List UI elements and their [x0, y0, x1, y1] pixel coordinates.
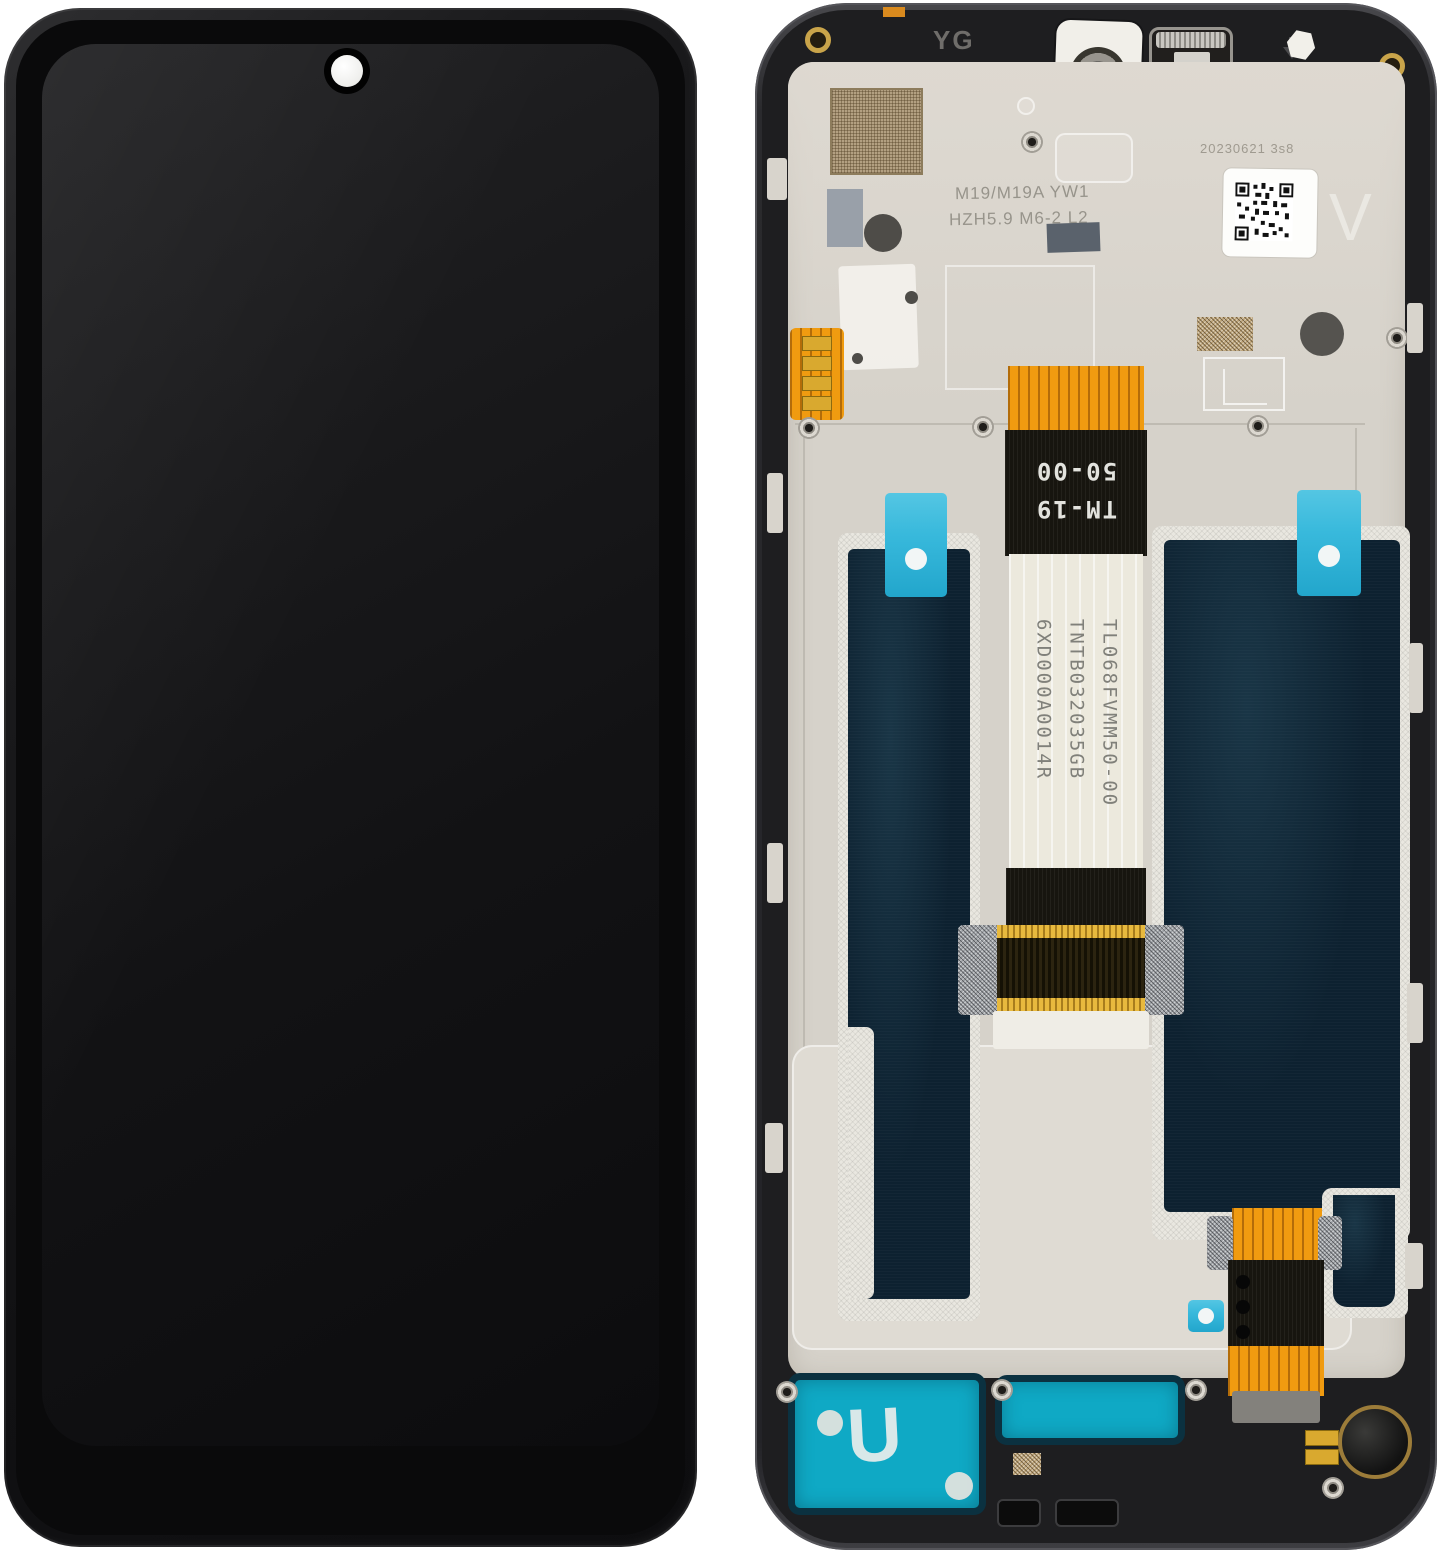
part-number-2: TNTB032035GB — [1060, 619, 1093, 807]
pull-tab-right — [1297, 490, 1361, 596]
connector-gold-bottom — [997, 998, 1145, 1011]
embossed-circle — [1017, 97, 1035, 115]
connector-pad-left — [958, 925, 1000, 1015]
speaker-adhesive-right — [995, 1375, 1185, 1445]
blue-gray-pad — [827, 189, 863, 247]
qr-code — [1235, 182, 1294, 241]
rail-tab — [1407, 303, 1423, 353]
yg-marking: YG — [933, 25, 975, 56]
flex-label-line-2: 50-00 — [1013, 452, 1139, 490]
br-flex-orange-bottom — [1228, 1346, 1324, 1396]
pull-tab-small — [1188, 1300, 1224, 1332]
graphite-arm — [1333, 1195, 1395, 1307]
punch-hole-camera — [324, 48, 370, 94]
embossed-rect — [1055, 133, 1133, 183]
camera-lens — [331, 55, 363, 87]
etched-outline-b — [1223, 369, 1267, 405]
dark-circle-left — [864, 214, 902, 252]
speaker-adhesive-left: U — [788, 1373, 986, 1515]
back-frame: YG D513 21243 — [755, 3, 1437, 1550]
bottom-slot-1 — [997, 1499, 1041, 1527]
mesh-letter: U — [845, 1397, 904, 1476]
flex-tail — [993, 1011, 1149, 1049]
main-flex-black-lower — [1006, 868, 1146, 930]
qr-sticker — [1222, 168, 1318, 258]
screw-boss — [1322, 1477, 1344, 1499]
antenna-mesh-pad — [830, 88, 923, 175]
mesh-circle-1 — [817, 1410, 843, 1436]
graphite-sheet-right — [1164, 540, 1400, 1212]
screw-boss — [991, 1379, 1013, 1401]
dark-circle-right — [1300, 312, 1344, 356]
screw-boss — [798, 417, 820, 439]
bottom-slot-2 — [1055, 1499, 1119, 1527]
screw-boss — [972, 416, 994, 438]
screw-boss — [1386, 327, 1408, 349]
rail-tab — [767, 473, 783, 533]
product-photo-canvas: YG D513 21243 — [0, 0, 1445, 1553]
connector-pad-right — [1142, 925, 1184, 1015]
br-flex-orange-top — [1232, 1208, 1322, 1266]
graphite-left-notch — [848, 1027, 874, 1299]
rail-tab — [767, 158, 787, 200]
connector-body — [997, 938, 1145, 998]
vibration-motor — [1338, 1405, 1412, 1479]
screw-boss — [776, 1381, 798, 1403]
pull-tab-left — [885, 493, 947, 597]
antenna-contact-pad — [1197, 317, 1253, 351]
front-phone — [4, 8, 697, 1547]
etch-line-1: M19/M19A YW1 — [955, 182, 1090, 204]
pull-tab-hole — [905, 548, 927, 570]
version-marking: V — [1329, 183, 1372, 250]
rail-tab — [765, 1123, 783, 1173]
main-flex-orange-top — [1008, 366, 1144, 434]
part-number-1: TL068FVMM50-00 — [1093, 619, 1126, 807]
rail-tab — [1409, 643, 1423, 713]
small-dot-1 — [905, 291, 918, 304]
screw-ring-top-left — [805, 27, 831, 53]
motor-contact-2 — [1305, 1449, 1339, 1465]
rail-tab — [1405, 1243, 1423, 1289]
rail-tab — [1407, 983, 1423, 1043]
part-number-3: 6XD000A0014R — [1027, 619, 1060, 807]
date-stamp: 20230621 3s8 — [1200, 141, 1294, 156]
pull-tab-hole — [1318, 545, 1340, 567]
small-dot-2 — [852, 353, 863, 364]
br-flex-black — [1228, 1260, 1324, 1348]
screw-boss — [1185, 1379, 1207, 1401]
side-flex-connector — [790, 328, 844, 420]
bottom-contact-pad — [1013, 1453, 1041, 1475]
pull-tab-hole — [1198, 1308, 1214, 1324]
white-tape-patch — [838, 264, 919, 371]
antenna-contact-chip — [883, 7, 905, 17]
br-flex-end-pad — [1232, 1391, 1320, 1423]
main-flex-white-label: TL068FVMM50-00 TNTB032035GB 6XD000A0014R — [1009, 554, 1143, 872]
connector-gold-top — [997, 925, 1145, 938]
flex-label-line-1: TM-19 — [1013, 490, 1139, 528]
screw-boss — [1021, 131, 1043, 153]
rail-tab — [767, 843, 783, 903]
screw-boss — [1247, 415, 1269, 437]
speaker-mesh — [1156, 32, 1226, 48]
screen-reflection — [42, 44, 659, 1446]
mesh-circle-2 — [945, 1472, 973, 1500]
motor-contact-1 — [1305, 1430, 1339, 1446]
main-flex-black-label: TM-19 50-00 — [1005, 430, 1147, 556]
slate-pad — [1047, 222, 1101, 253]
